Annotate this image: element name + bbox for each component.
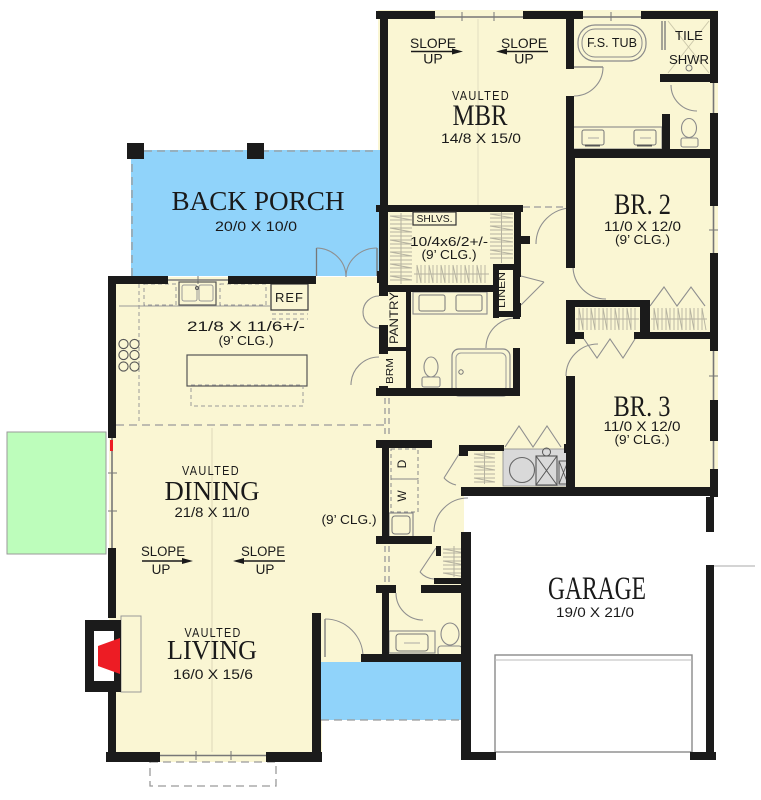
svg-text:21/8 X 11/6+/-: 21/8 X 11/6+/- [187, 318, 305, 334]
svg-text:LINEN: LINEN [496, 272, 508, 308]
svg-text:SLOPE: SLOPE [410, 35, 456, 51]
svg-text:REF: REF [275, 290, 304, 305]
svg-text:20/0 X 10/0: 20/0 X 10/0 [215, 219, 297, 234]
svg-text:D: D [395, 459, 409, 468]
svg-text:PANTRY: PANTRY [389, 292, 401, 344]
svg-text:19/0 X 21/0: 19/0 X 21/0 [556, 605, 634, 620]
svg-text:BACK PORCH: BACK PORCH [172, 186, 345, 216]
svg-text:(9’ CLG.): (9’ CLG.) [219, 333, 274, 348]
svg-text:DINING: DINING [165, 476, 260, 506]
svg-text:(9’ CLG.): (9’ CLG.) [422, 247, 477, 262]
svg-text:BRM: BRM [385, 358, 396, 384]
svg-text:BR. 2: BR. 2 [614, 188, 671, 221]
svg-text:UP: UP [423, 51, 442, 67]
svg-text:(9’ CLG.): (9’ CLG.) [322, 512, 377, 527]
svg-text:SHWR: SHWR [669, 52, 709, 67]
svg-text:UP: UP [256, 562, 275, 577]
svg-text:W: W [395, 490, 409, 502]
svg-text:SLOPE: SLOPE [501, 35, 547, 51]
svg-text:SHLVS.: SHLVS. [417, 213, 453, 225]
svg-text:SLOPE: SLOPE [241, 544, 285, 559]
svg-text:SLOPE: SLOPE [141, 544, 185, 559]
svg-text:TILE: TILE [675, 28, 703, 43]
svg-text:MBR: MBR [453, 99, 508, 132]
svg-text:GARAGE: GARAGE [548, 571, 646, 607]
svg-text:16/0 X 15/6: 16/0 X 15/6 [173, 667, 253, 682]
svg-text:F.S. TUB: F.S. TUB [587, 35, 637, 50]
svg-text:LIVING: LIVING [167, 635, 257, 665]
svg-text:14/8 X 15/0: 14/8 X 15/0 [441, 131, 521, 146]
svg-text:UP: UP [152, 562, 171, 577]
svg-text:21/8 X 11/0: 21/8 X 11/0 [175, 505, 250, 520]
svg-text:(9’ CLG.): (9’ CLG.) [615, 232, 670, 247]
svg-text:UP: UP [514, 51, 533, 67]
svg-text:(9’ CLG.): (9’ CLG.) [615, 432, 670, 447]
